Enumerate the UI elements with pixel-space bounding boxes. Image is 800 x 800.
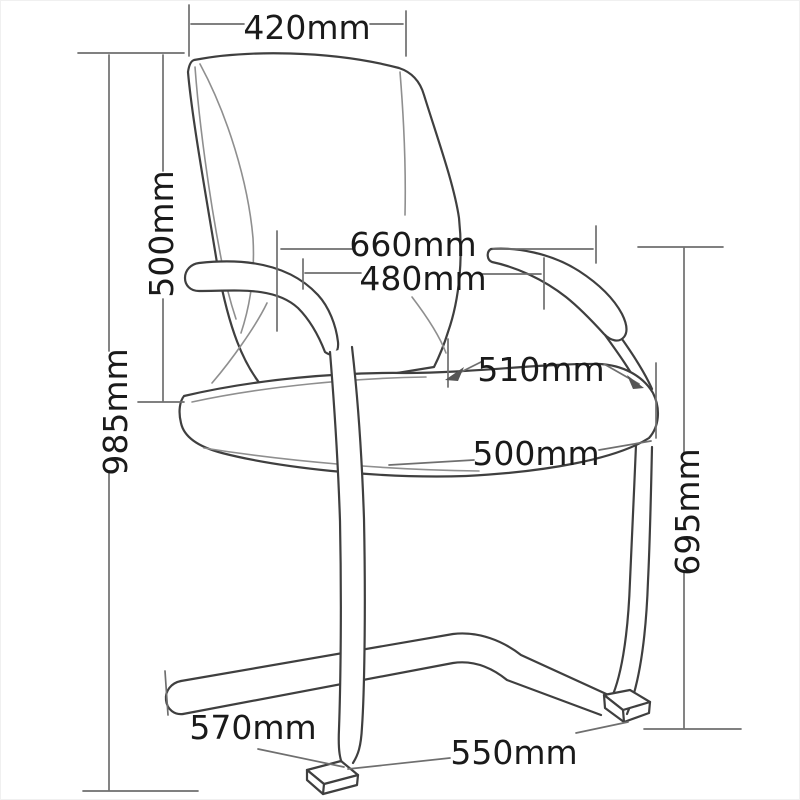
dim-back-height: 500mm (138, 55, 184, 402)
dim-label-base-depth: 550mm (450, 733, 577, 772)
dim-label-back-height: 500mm (142, 170, 181, 297)
front-foot (307, 761, 358, 794)
runner-top-edge (181, 633, 615, 698)
runner-end-cap (166, 681, 183, 714)
dim-label-arm-height: 695mm (668, 448, 707, 575)
dim-label-base-front-depth: 570mm (189, 708, 316, 747)
rear-frame-tube (609, 445, 652, 714)
dim-arm-height: 695mm (638, 247, 741, 729)
dim-label-seat-depth: 500mm (472, 434, 599, 473)
chair-drawing (166, 53, 658, 794)
dim-base-front-depth: 570mm (165, 671, 344, 767)
base-runner (166, 633, 615, 715)
dim-back-width: 420mm (189, 5, 406, 56)
dim-label-back-width: 420mm (243, 8, 370, 47)
rear-foot (604, 690, 650, 722)
far-armrest-pad (488, 249, 627, 341)
dim-base-depth: 550mm (348, 722, 628, 772)
dim-label-overall-height: 985mm (96, 348, 135, 475)
dim-label-seat-width: 510mm (477, 350, 604, 389)
diagram-canvas: 420mm 985mm 500mm 660mm 480mm (0, 0, 800, 800)
dim-label-between-arms: 480mm (359, 259, 486, 298)
chair-dimension-diagram: 420mm 985mm 500mm 660mm 480mm (1, 1, 800, 800)
